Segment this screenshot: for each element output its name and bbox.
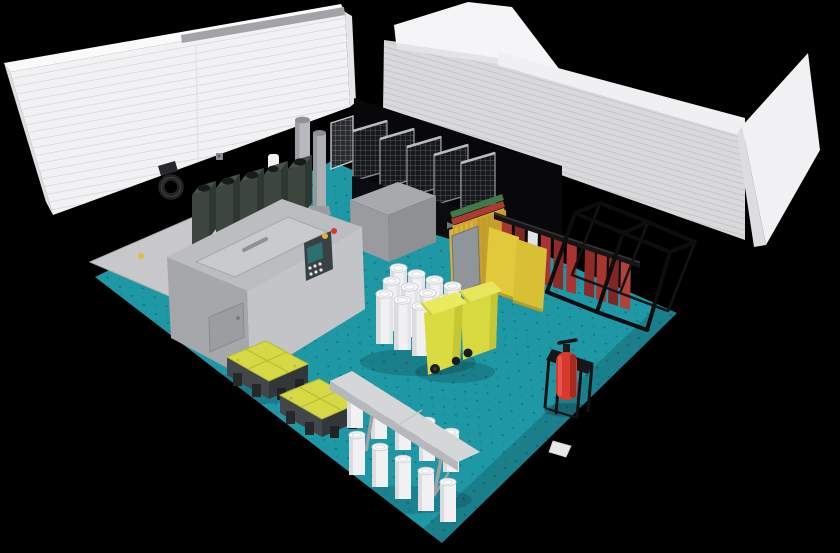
extinguisher-shade	[570, 354, 576, 398]
hanging-panel-yellow	[513, 239, 547, 311]
scene-canvas	[0, 0, 840, 553]
panel-button	[319, 268, 322, 271]
panel-button	[318, 262, 321, 265]
hanging-panel-darkred	[584, 247, 595, 298]
extinguisher-highlight	[558, 356, 562, 396]
indicator-light-red	[331, 228, 337, 234]
indicator-light-yellow	[322, 233, 328, 239]
wall-sensor-dot	[218, 155, 221, 158]
wheel-hub	[433, 367, 437, 371]
render-viewport	[0, 0, 840, 553]
bin-wheel	[452, 357, 460, 365]
panel-button	[308, 266, 311, 269]
white-basket	[331, 116, 353, 169]
wheelie-bin-yellow[interactable]	[459, 281, 502, 360]
hatch-knob	[236, 316, 240, 320]
panel-button	[313, 264, 316, 267]
floor-debris	[138, 253, 144, 259]
panel-button	[309, 272, 312, 275]
panel-button	[314, 270, 317, 273]
bin-wheel	[464, 349, 473, 358]
